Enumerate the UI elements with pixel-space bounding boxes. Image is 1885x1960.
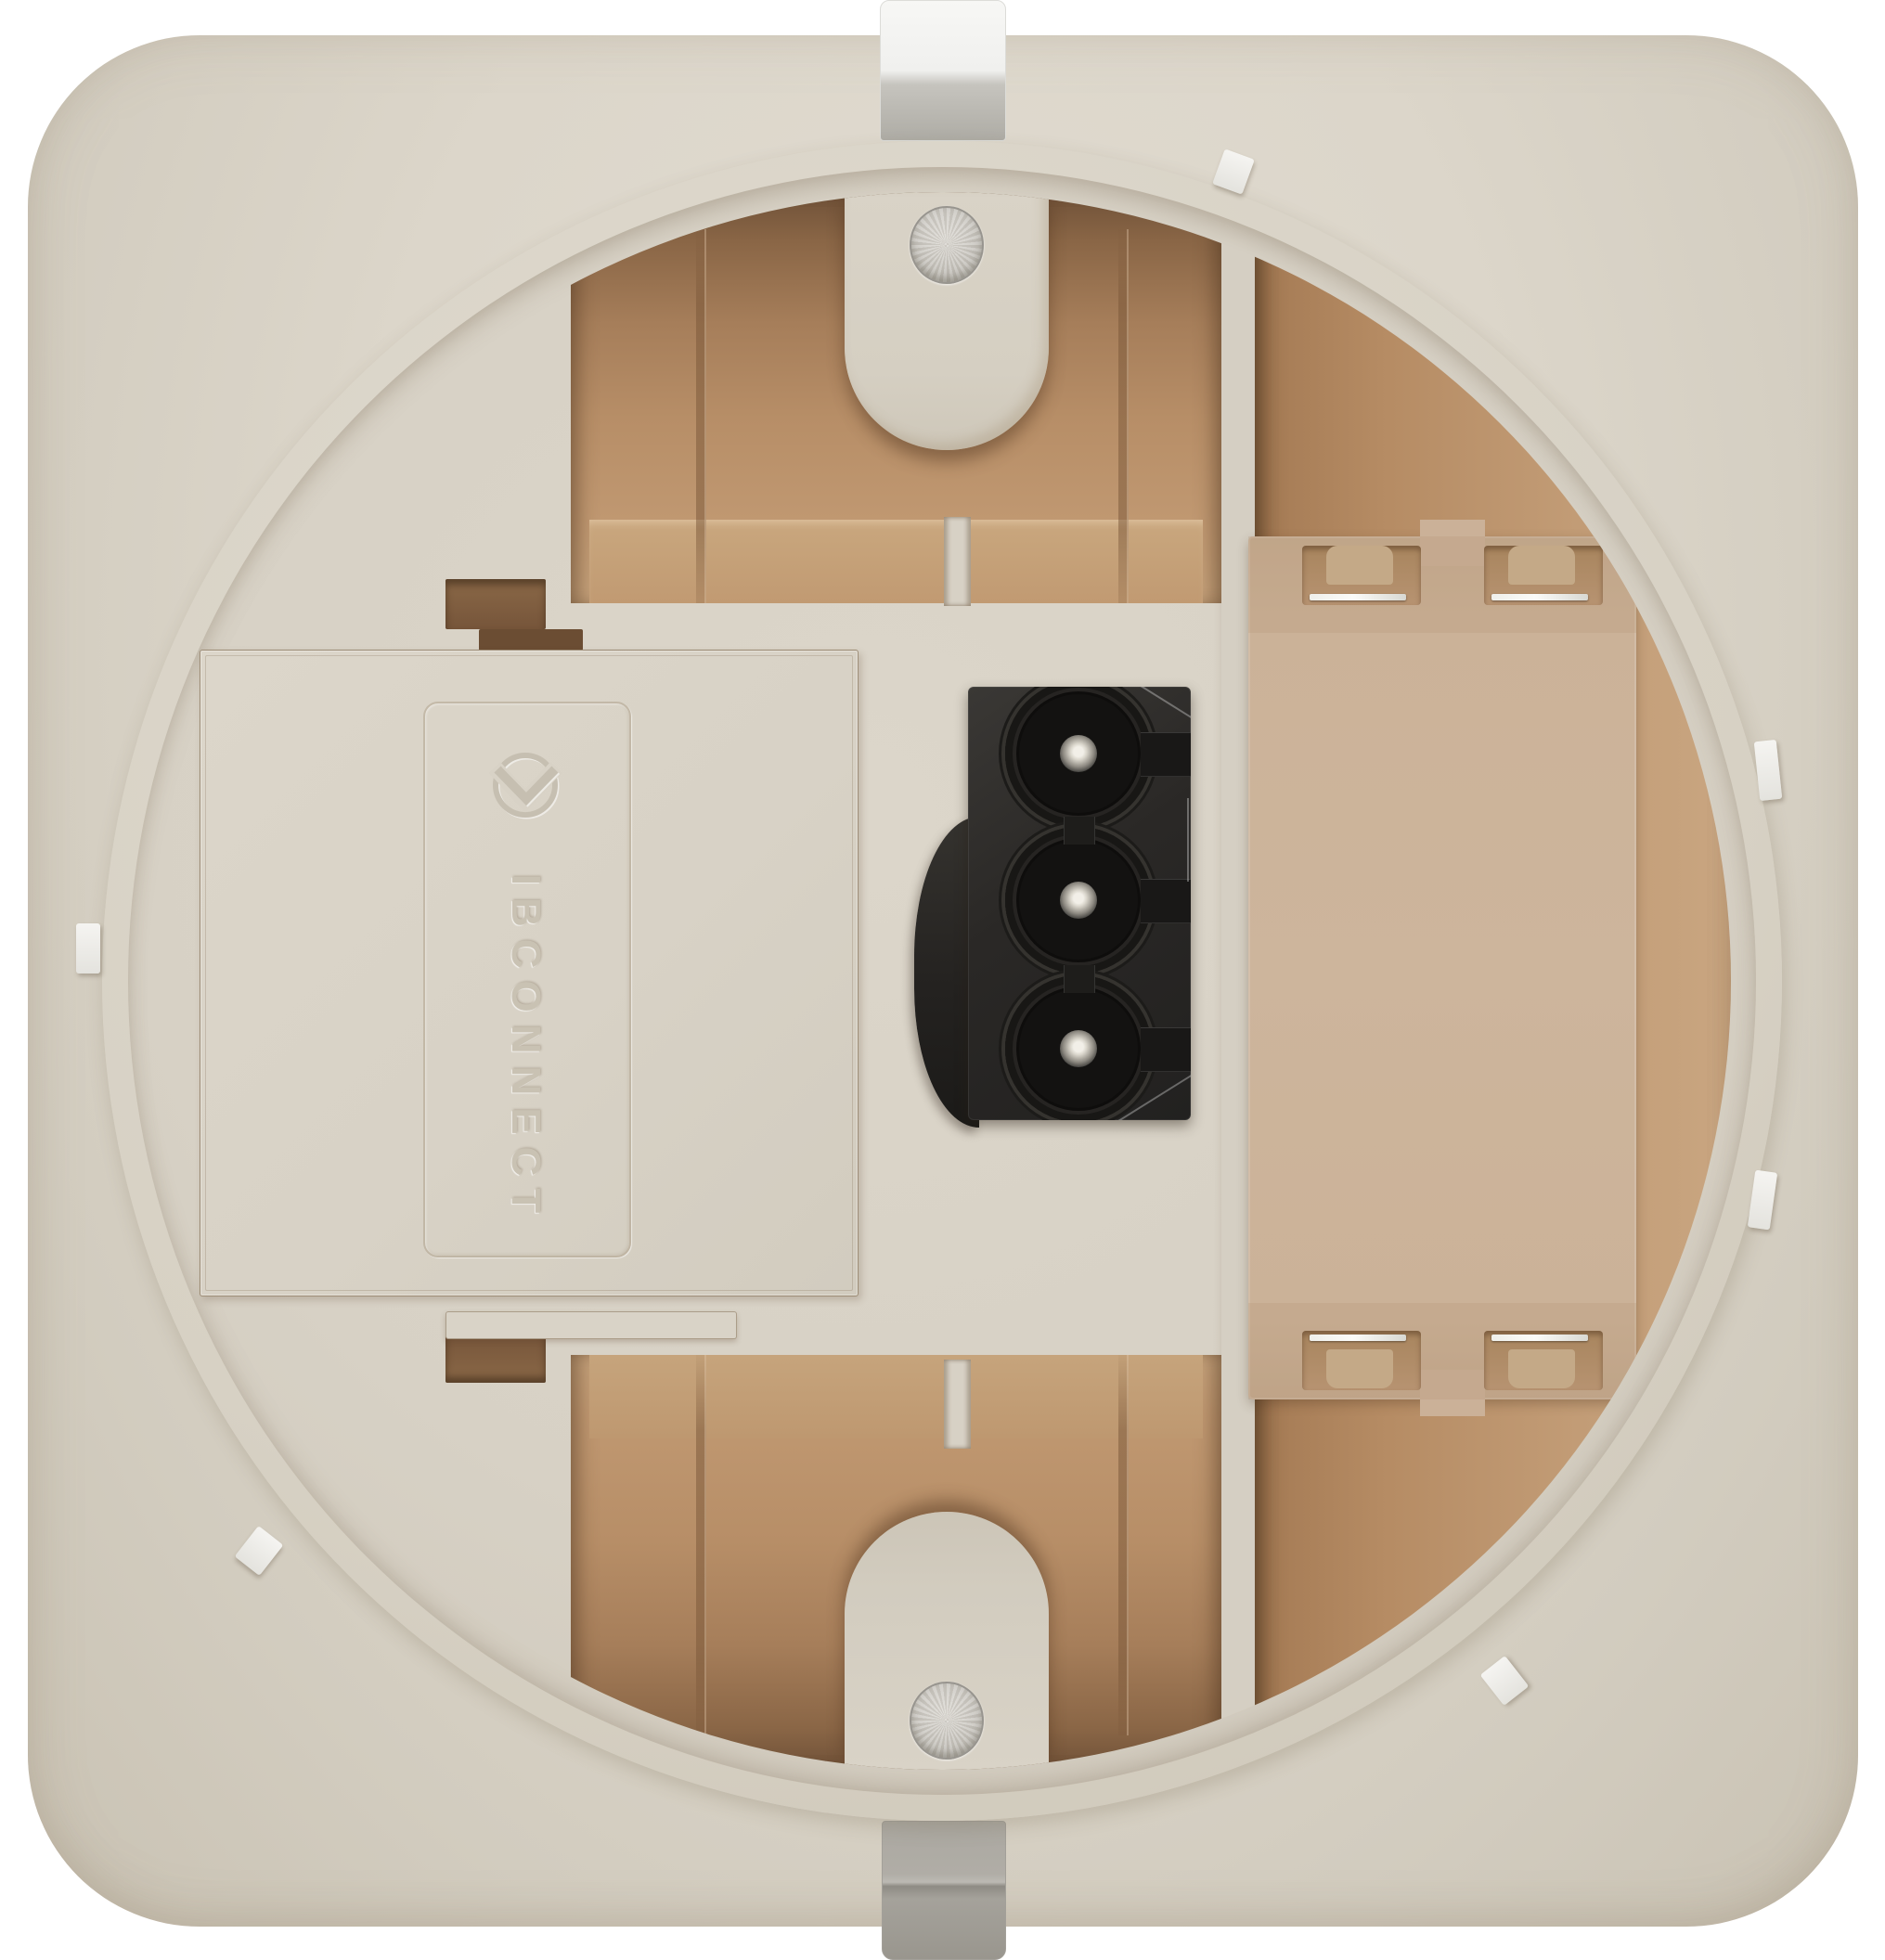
bay-contact-recess <box>1302 1331 1421 1390</box>
bay-contact-bump <box>1508 1349 1575 1388</box>
door-embossed-frame <box>423 702 631 1257</box>
bay-contact-recess <box>1302 546 1421 605</box>
top-center-slot <box>944 517 971 606</box>
cable-slot-bottom <box>445 1333 546 1383</box>
rim-tab <box>76 923 100 974</box>
mounting-clip-bottom <box>882 1821 1006 1960</box>
bay-contact-recess <box>1484 546 1603 605</box>
bay-contact-recess <box>1484 1331 1603 1390</box>
bottom-screw <box>910 1682 984 1760</box>
connector-block <box>968 687 1191 1120</box>
bottom-compartment-floor <box>589 1355 1203 1438</box>
socket-key-notch <box>1141 1027 1191 1072</box>
mounting-clip-top <box>880 0 1006 141</box>
bottom-center-slot <box>944 1360 971 1449</box>
circular-interior: IBCONNECT <box>128 167 1756 1795</box>
door-latch-slot-top <box>479 629 583 651</box>
bay-contact-bump <box>1326 546 1393 585</box>
cable-slot-top <box>445 579 546 629</box>
socket-key-notch <box>1141 732 1191 777</box>
chevron-circle-icon <box>484 743 567 827</box>
bay-clip-strip-bottom <box>1248 1303 1636 1399</box>
top-compartment-floor <box>589 520 1203 603</box>
connector-pin-3 <box>1060 1030 1097 1067</box>
bottom-compartment-rib <box>696 1355 706 1735</box>
top-compartment-rib <box>1118 229 1129 603</box>
bay-spring-contact <box>1310 594 1406 600</box>
door-bottom-latch <box>445 1311 737 1339</box>
socket-link-notch <box>1064 965 1095 993</box>
bay-spring-contact <box>1491 594 1588 600</box>
bottom-compartment-rib <box>1118 1355 1129 1735</box>
connector-pin-2 <box>1060 882 1097 919</box>
socket-link-notch <box>1064 817 1095 845</box>
socket-key-notch <box>1141 879 1191 923</box>
bay-contact-bump <box>1326 1349 1393 1388</box>
module-bay <box>1248 536 1636 1399</box>
bay-contact-bump <box>1508 546 1575 585</box>
top-screw <box>910 206 984 284</box>
brand-text: IBCONNECT <box>497 845 553 1254</box>
bay-spring-contact <box>1310 1335 1406 1341</box>
bay-spring-contact <box>1491 1335 1588 1341</box>
cover-door: IBCONNECT <box>200 650 859 1296</box>
edge-highlight <box>1187 798 1189 882</box>
connector-pin-1 <box>1060 735 1097 772</box>
bay-clip-strip-top <box>1248 536 1636 633</box>
top-compartment-rib <box>696 229 706 603</box>
